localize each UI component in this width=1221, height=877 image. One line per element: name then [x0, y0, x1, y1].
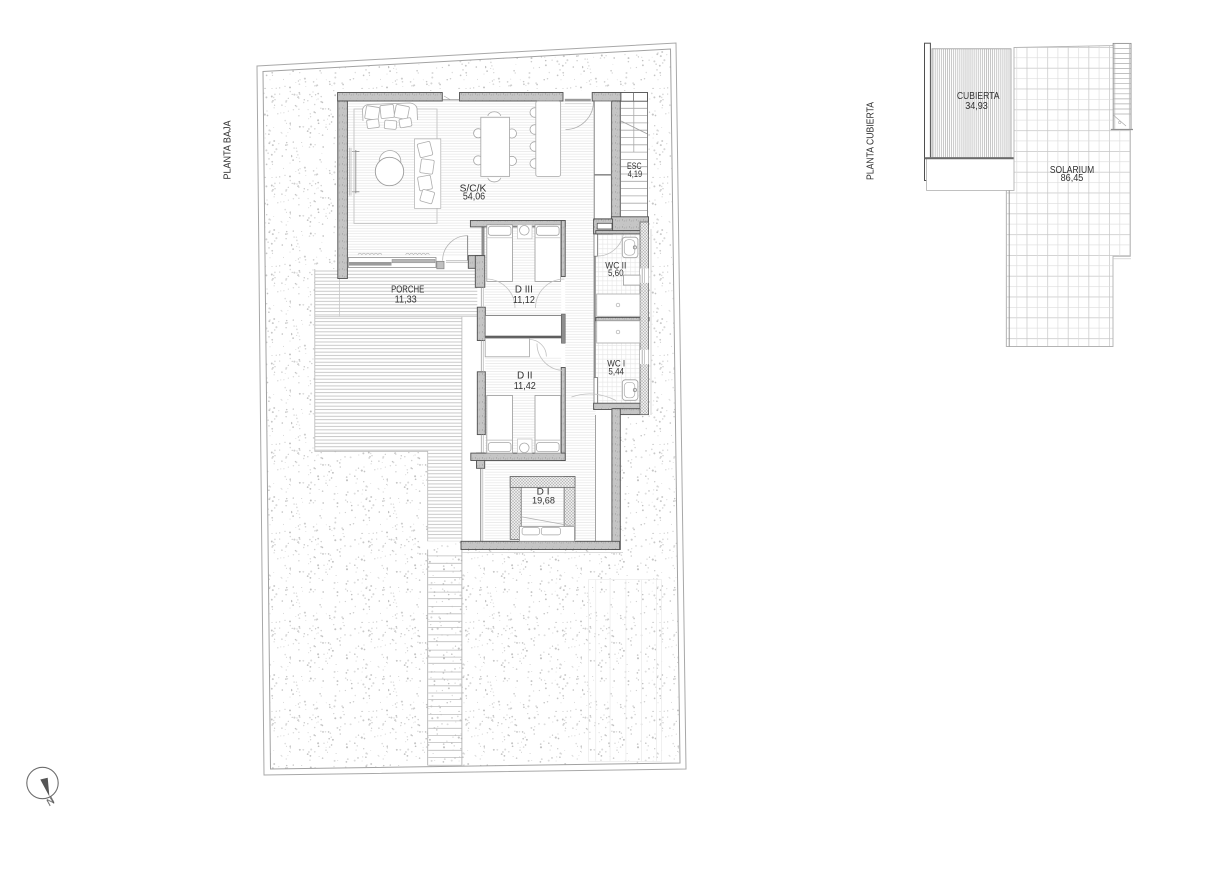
svg-text:11,12: 11,12 — [513, 295, 535, 306]
svg-text:D III: D III — [515, 284, 533, 295]
svg-text:PLANTA CUBIERTA: PLANTA CUBIERTA — [866, 102, 877, 180]
svg-text:11,42: 11,42 — [514, 381, 536, 392]
svg-text:54,06: 54,06 — [463, 192, 485, 203]
svg-text:D II: D II — [517, 370, 533, 381]
svg-text:PLANTA BAJA: PLANTA BAJA — [223, 120, 234, 179]
svg-text:11,33: 11,33 — [395, 294, 417, 305]
svg-text:5,60: 5,60 — [608, 268, 624, 278]
svg-text:4,19: 4,19 — [628, 169, 643, 179]
svg-text:19,68: 19,68 — [532, 495, 555, 505]
svg-text:34,93: 34,93 — [965, 101, 988, 112]
svg-text:86,45: 86,45 — [1061, 173, 1084, 184]
svg-text:5,44: 5,44 — [608, 366, 624, 376]
